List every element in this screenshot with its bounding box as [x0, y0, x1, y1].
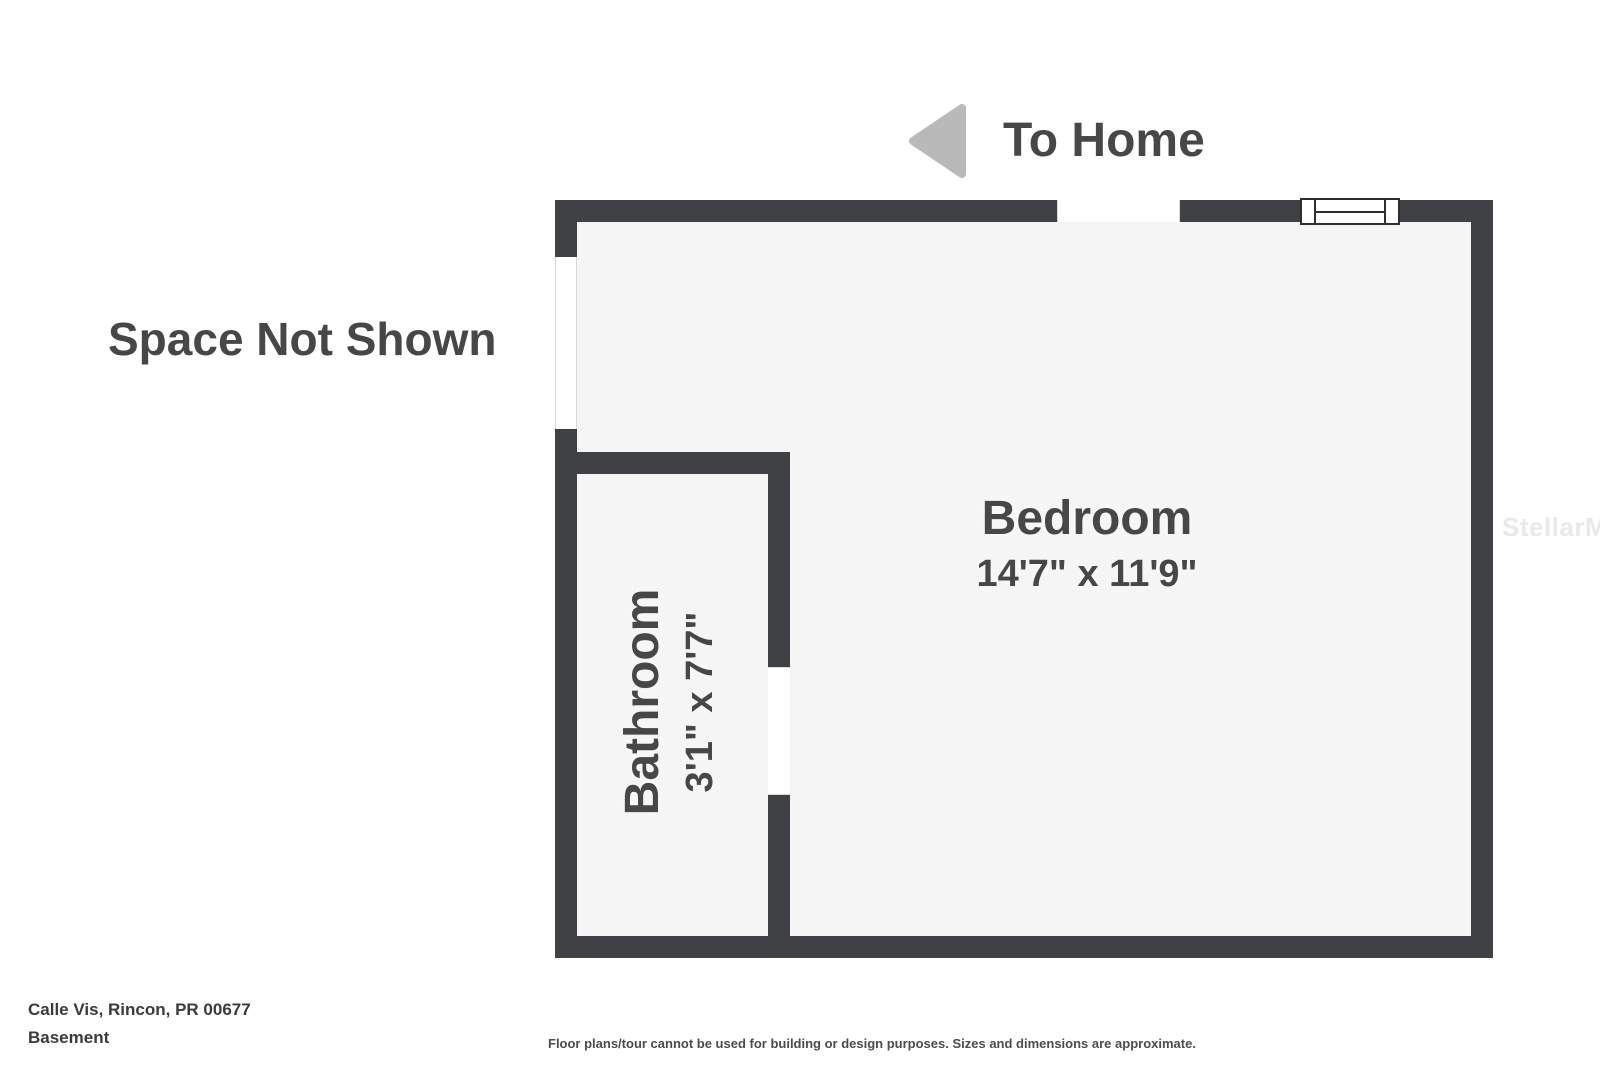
bedroom-label: Bedroom 14'7" x 11'9" — [887, 492, 1287, 596]
left-arrow-icon — [905, 102, 967, 180]
bathroom-name: Bathroom — [616, 589, 670, 816]
window-pane-line — [1315, 211, 1385, 213]
bedroom-name: Bedroom — [887, 492, 1287, 546]
window-divider-right — [1384, 200, 1386, 223]
floor-level-label: Basement — [28, 1028, 109, 1048]
to-home-label: To Home — [1003, 102, 1205, 180]
to-home-nav[interactable]: To Home — [905, 102, 1205, 180]
top-door-opening — [1057, 200, 1180, 222]
left-door-opening — [555, 257, 577, 429]
bathroom-dimensions: 3'1" x 7'7" — [680, 612, 722, 793]
bathroom-door-opening — [768, 667, 790, 795]
disclaimer-text: Floor plans/tour cannot be used for buil… — [548, 1036, 1196, 1051]
mls-watermark: StellarMLS — [1502, 512, 1600, 543]
address-label: Calle Vis, Rincon, PR 00677 — [28, 1000, 251, 1020]
floor-plan-page: To Home Space Not Shown Bedroom 14'7" x … — [0, 0, 1600, 1066]
bedroom-dimensions: 14'7" x 11'9" — [887, 554, 1287, 596]
bathroom-label: Bathroom 3'1" x 7'7" — [616, 589, 722, 816]
bathroom-top-wall — [555, 452, 790, 474]
window — [1300, 198, 1400, 225]
space-not-shown-label: Space Not Shown — [108, 312, 496, 366]
